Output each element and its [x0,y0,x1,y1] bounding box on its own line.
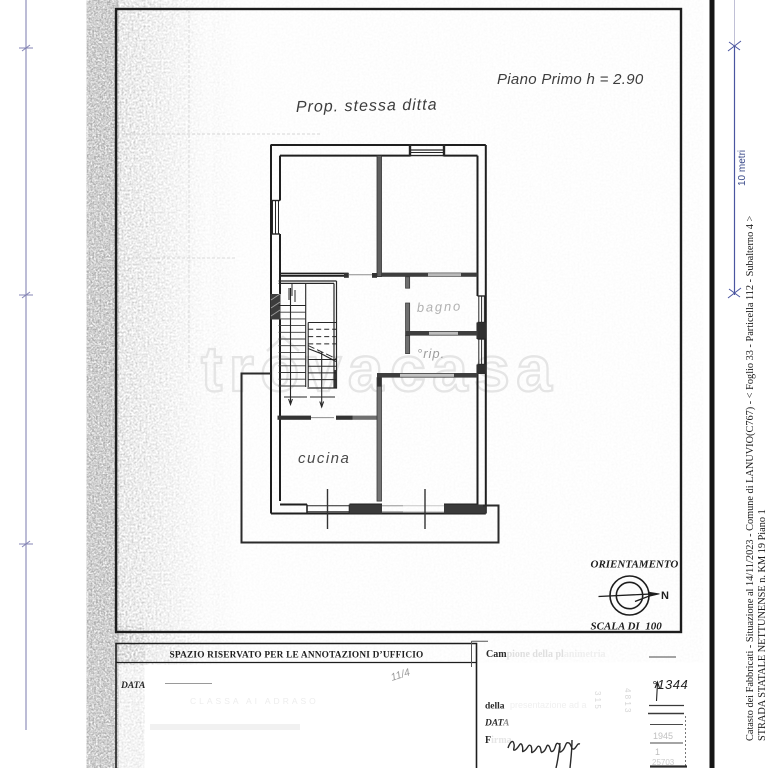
svg-text:SPAZIO RISERVATO PER LE ANNOTA: SPAZIO RISERVATO PER LE ANNOTAZIONI D’UF… [170,651,424,661]
svg-text:Firma: Firma [485,735,512,746]
svg-text:bagno: bagno [417,298,463,315]
svg-text:Campione della planimetria: Campione della planimetria [486,649,605,660]
svg-text:STRADA STATALE NETTUNENSE n. K: STRADA STATALE NETTUNENSE n. KM 19 Piano… [757,509,768,741]
svg-text:3 1 5: 3 1 5 [593,691,602,709]
svg-text:N: N [661,590,669,602]
svg-text:1: 1 [655,747,660,757]
svg-text:cucina: cucina [298,450,350,467]
svg-text:ORIENTAMENTO: ORIENTAMENTO [591,559,679,571]
svg-text:CLASSA AI ADRASO: CLASSA AI ADRASO [190,696,319,706]
svg-text:della: della [485,702,505,712]
svg-text:4 8 1 3: 4 8 1 3 [623,688,632,713]
svg-text:Catasto dei Fabbricati - Situa: Catasto dei Fabbricati - Situazione al 1… [745,215,756,741]
svg-text:SCALA DI 100: SCALA DI 100 [591,621,663,633]
svg-text:Prop. stessa ditta: Prop. stessa ditta [296,97,438,116]
svg-text:presentazione ad a: presentazione ad a [510,700,587,710]
svg-text:DATA: DATA [120,681,145,691]
svg-text:1945: 1945 [653,731,673,741]
svg-text:10 metri: 10 metri [737,150,748,186]
svg-text:°rip.: °rip. [417,346,445,361]
svg-text:Piano Primo h = 2.90: Piano Primo h = 2.90 [497,71,644,88]
svg-text:DATA: DATA [484,719,509,729]
